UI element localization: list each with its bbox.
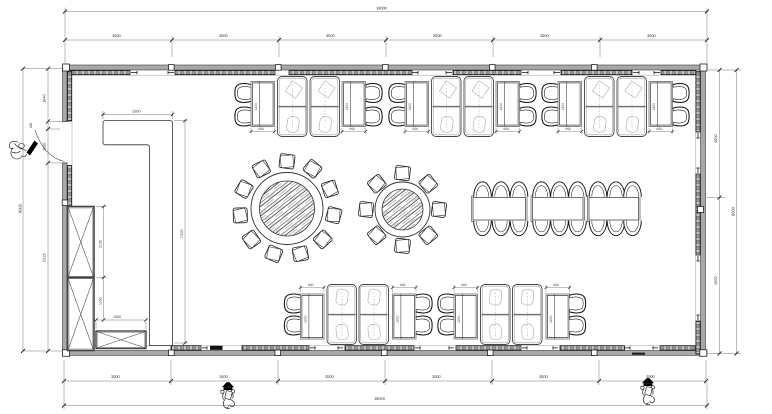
- svg-text:3000: 3000: [647, 33, 656, 38]
- svg-text:650: 650: [657, 127, 663, 131]
- svg-text:650: 650: [566, 127, 572, 131]
- svg-text:3000: 3000: [112, 33, 121, 38]
- svg-text:180: 180: [29, 123, 33, 129]
- svg-text:3000: 3000: [433, 33, 442, 38]
- svg-text:2135: 2135: [99, 240, 103, 248]
- svg-text:650: 650: [413, 127, 419, 131]
- svg-text:1640: 1640: [42, 94, 47, 103]
- svg-text:8000: 8000: [18, 203, 23, 213]
- svg-text:18000: 18000: [374, 396, 386, 401]
- svg-text:3500: 3500: [326, 33, 335, 38]
- svg-text:3000: 3000: [325, 374, 334, 379]
- svg-text:1135: 1135: [42, 143, 47, 151]
- svg-text:5225: 5225: [42, 253, 47, 262]
- svg-text:3000: 3000: [540, 33, 549, 38]
- svg-text:600: 600: [308, 283, 314, 287]
- svg-text:4000: 4000: [713, 276, 718, 285]
- svg-text:1500: 1500: [113, 315, 121, 319]
- svg-text:1000: 1000: [219, 374, 228, 379]
- svg-text:1150: 1150: [99, 297, 103, 305]
- svg-text:4000: 4000: [713, 134, 718, 143]
- svg-text:3000: 3000: [219, 33, 228, 38]
- svg-text:650: 650: [504, 127, 510, 131]
- svg-text:3000: 3000: [111, 374, 120, 379]
- svg-text:1500: 1500: [132, 110, 140, 114]
- svg-text:3000: 3000: [539, 374, 548, 379]
- svg-text:650: 650: [350, 127, 356, 131]
- svg-text:18000: 18000: [376, 6, 388, 11]
- svg-text:7410: 7410: [180, 230, 184, 238]
- svg-text:600: 600: [400, 283, 406, 287]
- svg-text:600: 600: [462, 283, 468, 287]
- svg-text:2000: 2000: [432, 374, 441, 379]
- svg-text:600: 600: [554, 283, 560, 287]
- svg-text:8000: 8000: [731, 206, 736, 216]
- svg-text:650: 650: [259, 127, 265, 131]
